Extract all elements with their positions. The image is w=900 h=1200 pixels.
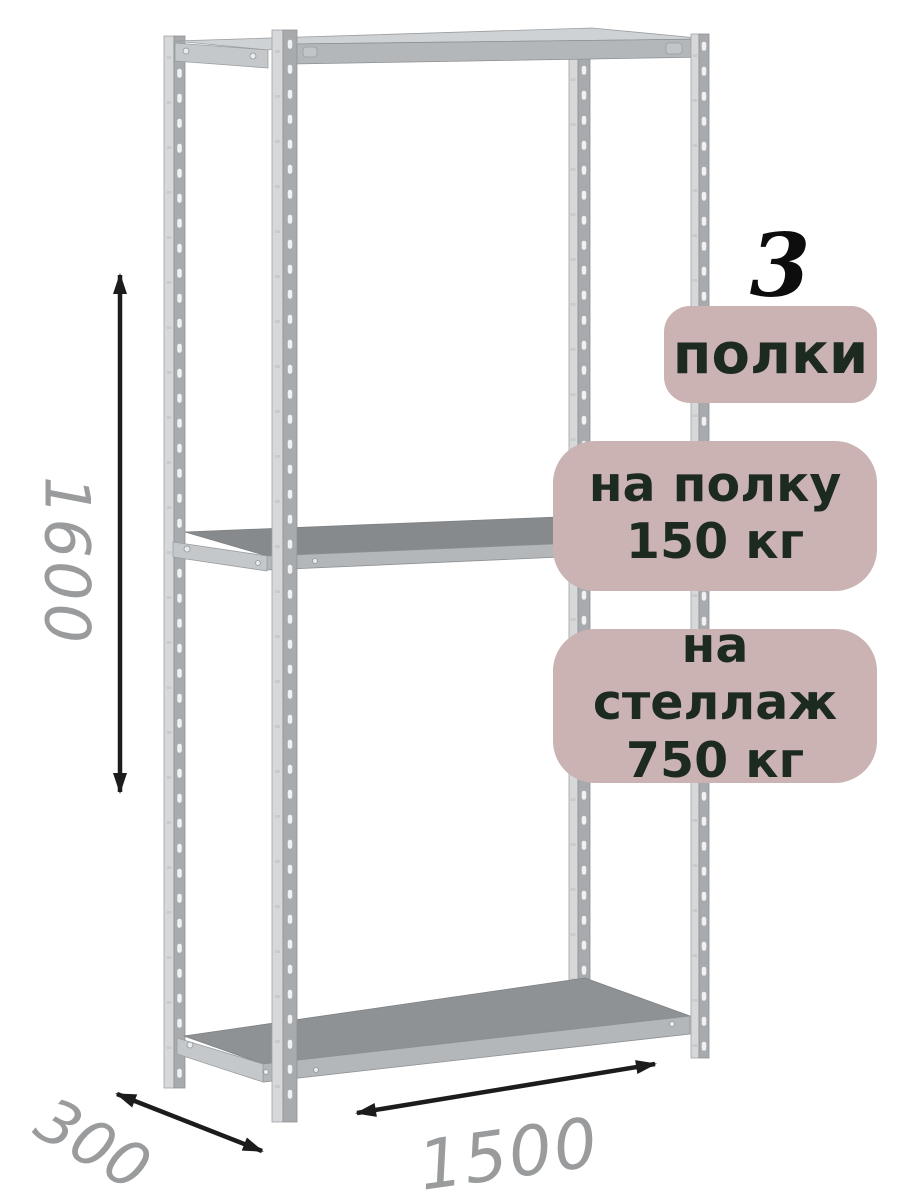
load-per-shelf-line2: 150 кг <box>626 513 804 570</box>
load-per-rack-badge: на стеллаж 750 кг <box>553 629 877 783</box>
post-back-left <box>164 36 185 1088</box>
height-dimension-label: 1600 <box>31 476 104 646</box>
load-per-rack-line1: на стеллаж <box>553 617 877 732</box>
shelving-rack-illustration <box>0 0 900 1200</box>
load-per-rack-line2: 750 кг <box>626 732 804 789</box>
top-shelf <box>175 28 708 68</box>
load-per-shelf-badge: на полку 150 кг <box>553 441 877 591</box>
bottom-shelf <box>177 978 690 1082</box>
product-image: 1600 300 1500 3 полки на полку 150 кг на… <box>0 0 900 1200</box>
shelf-count-number: 3 <box>705 222 855 309</box>
load-per-shelf-line1: на полку <box>589 456 842 513</box>
shelf-count-label: полки <box>673 322 868 387</box>
width-dimension-arrow <box>357 1064 655 1113</box>
shelf-count-badge: полки <box>664 306 877 403</box>
post-front-left <box>272 30 297 1122</box>
